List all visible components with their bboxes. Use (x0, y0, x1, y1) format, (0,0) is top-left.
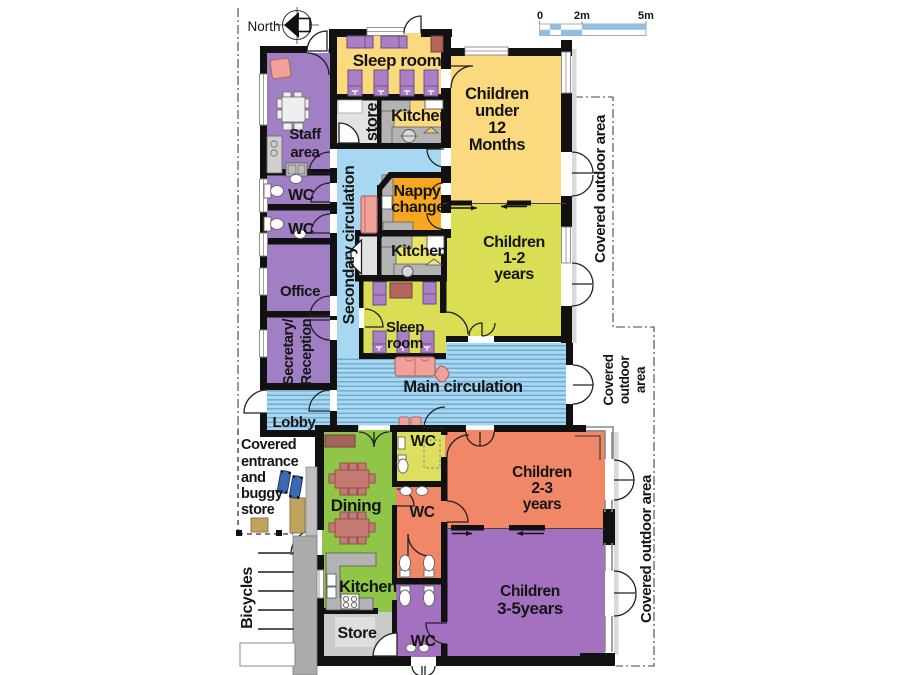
svg-text:years: years (494, 266, 534, 283)
svg-text:store: store (363, 103, 381, 142)
svg-text:Children: Children (483, 234, 545, 251)
svg-text:Bicycles: Bicycles (239, 567, 256, 629)
svg-text:5m: 5m (638, 10, 654, 22)
svg-text:Lobby: Lobby (273, 414, 317, 431)
svg-text:Sleep room: Sleep room (353, 51, 442, 70)
svg-text:Secondary circulation: Secondary circulation (341, 166, 358, 325)
svg-text:WC: WC (288, 221, 315, 238)
svg-text:Secretary/: Secretary/ (281, 319, 297, 386)
svg-text:WC: WC (409, 504, 434, 521)
svg-text:Store: Store (338, 625, 377, 642)
svg-text:Covered: Covered (601, 354, 616, 405)
svg-text:area: area (633, 366, 648, 393)
svg-text:3-5years: 3-5years (497, 599, 563, 618)
svg-text:under: under (475, 102, 520, 120)
svg-text:and: and (241, 470, 266, 486)
svg-text:WC: WC (410, 633, 435, 650)
svg-text:Kitchen: Kitchen (391, 107, 449, 125)
svg-text:Children: Children (500, 583, 560, 600)
svg-text:Covered outdoor area: Covered outdoor area (592, 114, 609, 263)
svg-text:12: 12 (488, 119, 506, 137)
svg-text:buggy: buggy (241, 486, 283, 502)
svg-text:2-3: 2-3 (531, 480, 553, 497)
svg-text:entrance: entrance (241, 454, 299, 470)
svg-text:WC: WC (288, 187, 315, 204)
svg-text:Main circulation: Main circulation (403, 378, 523, 396)
svg-text:outdoor: outdoor (617, 355, 632, 404)
svg-text:Kitchen: Kitchen (339, 578, 397, 596)
svg-text:Reception: Reception (299, 319, 315, 386)
svg-text:Covered outdoor area: Covered outdoor area (638, 474, 655, 623)
svg-text:North: North (247, 19, 280, 34)
svg-text:Staff: Staff (289, 126, 322, 143)
svg-text:room: room (387, 335, 423, 352)
svg-text:0: 0 (537, 10, 543, 22)
svg-text:Months: Months (469, 136, 525, 154)
svg-text:Sleep: Sleep (386, 319, 424, 336)
svg-text:Children: Children (465, 85, 529, 103)
svg-text:area: area (290, 144, 320, 161)
svg-text:Covered: Covered (241, 437, 296, 453)
svg-text:Kitchen: Kitchen (391, 243, 447, 260)
svg-text:Office: Office (280, 283, 320, 300)
svg-text:Nappy: Nappy (394, 183, 441, 200)
svg-text:WC: WC (410, 433, 435, 450)
svg-text:years: years (523, 496, 562, 513)
svg-text:2m: 2m (574, 10, 590, 22)
svg-text:store: store (241, 502, 275, 518)
svg-text:change: change (391, 199, 445, 216)
svg-text:1-2: 1-2 (503, 250, 525, 267)
svg-text:Dining: Dining (331, 496, 381, 515)
svg-text:Children: Children (512, 464, 572, 481)
